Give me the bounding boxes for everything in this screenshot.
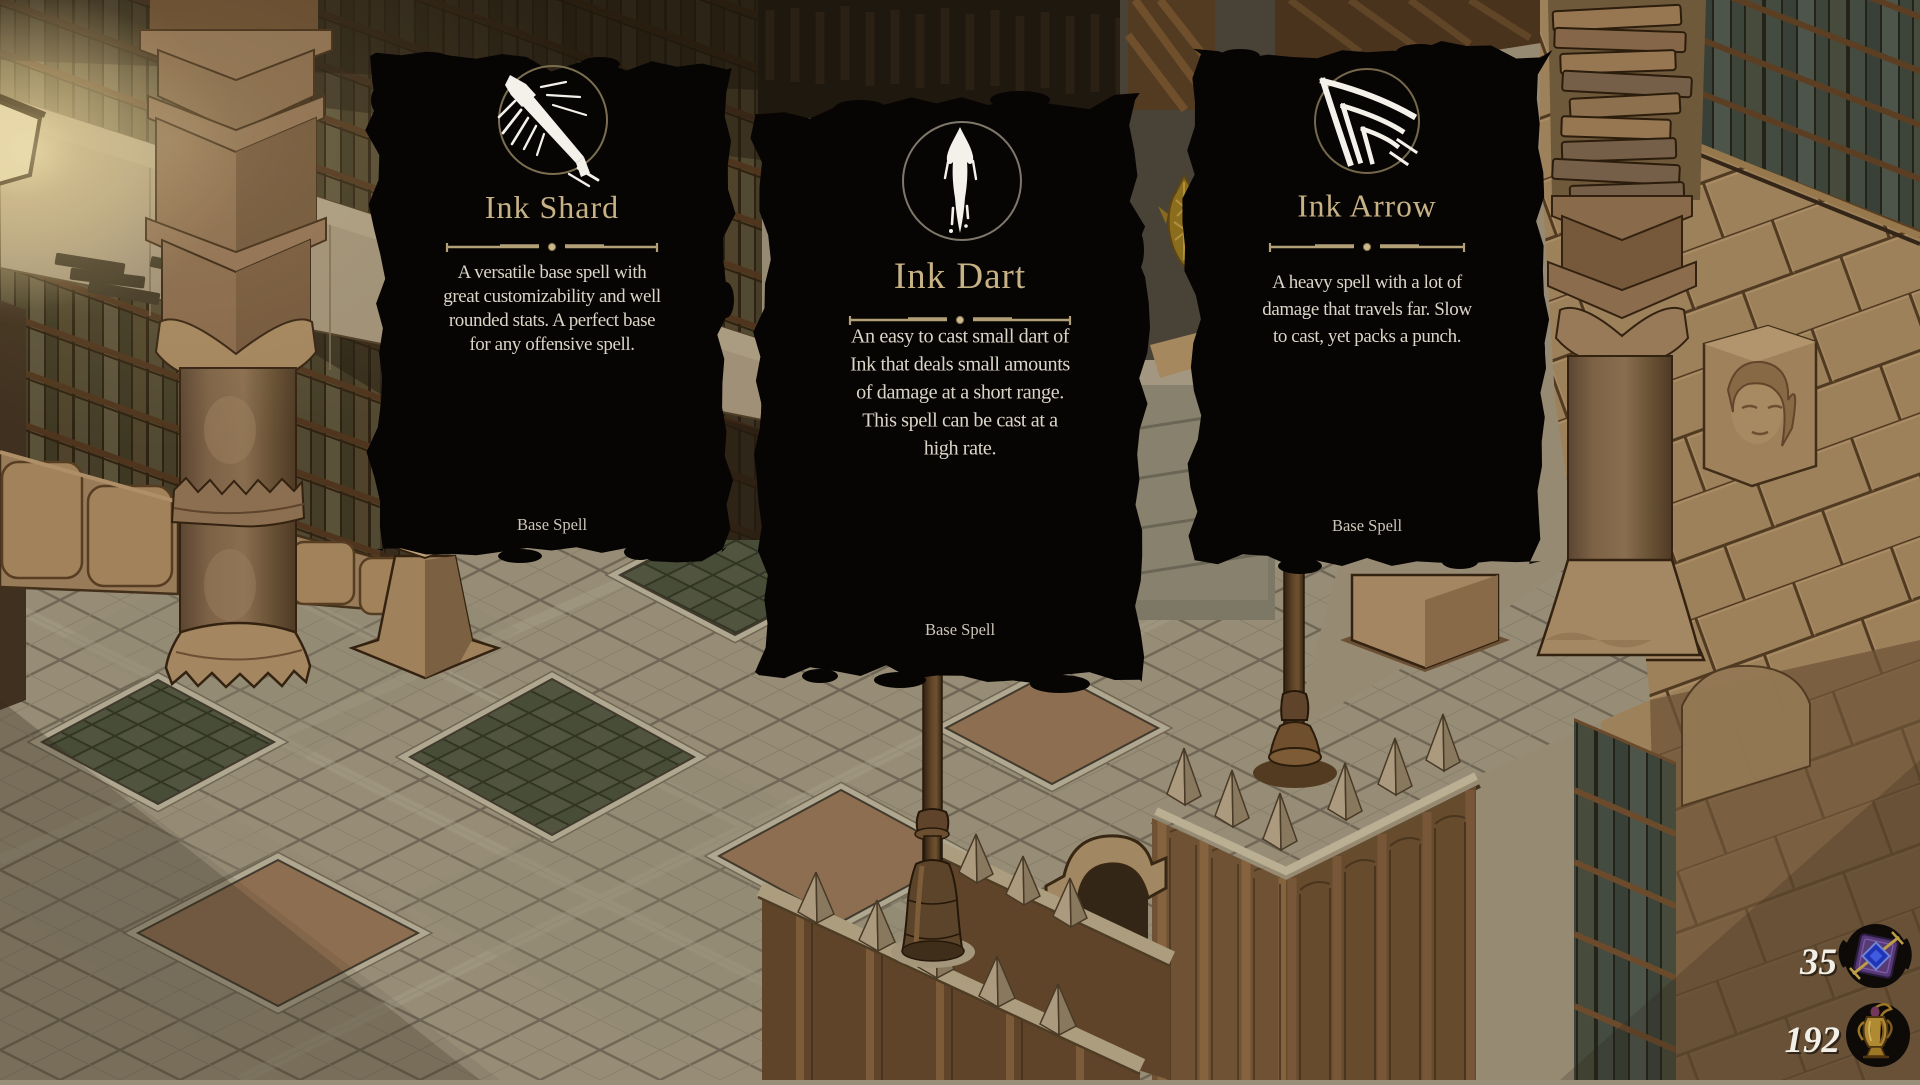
svg-text:Base Spell: Base Spell <box>517 515 588 534</box>
svg-text:rounded stats. A perfect base: rounded stats. A perfect base <box>449 310 655 331</box>
svg-text:damage that travels far. Slow: damage that travels far. Slow <box>1262 299 1472 320</box>
svg-text:192: 192 <box>1785 1020 1841 1061</box>
svg-text:of damage at a short range.: of damage at a short range. <box>856 382 1064 404</box>
svg-text:high rate.: high rate. <box>924 438 996 460</box>
svg-text:Base Spell: Base Spell <box>925 620 996 639</box>
svg-text:great customizability and well: great customizability and well <box>443 286 661 307</box>
svg-text:for any offensive spell.: for any offensive spell. <box>469 334 634 355</box>
svg-text:Base Spell: Base Spell <box>1332 516 1403 535</box>
svg-text:A versatile base spell with: A versatile base spell with <box>458 262 648 283</box>
svg-text:35: 35 <box>1799 942 1837 983</box>
svg-text:Ink Arrow: Ink Arrow <box>1297 189 1436 224</box>
svg-text:Ink Dart: Ink Dart <box>894 256 1026 297</box>
svg-text:Ink Shard: Ink Shard <box>485 189 619 225</box>
svg-text:to cast, yet packs a punch.: to cast, yet packs a punch. <box>1273 326 1461 347</box>
svg-text:Ink that deals small amounts: Ink that deals small amounts <box>850 354 1070 376</box>
svg-text:This spell can be cast at a: This spell can be cast at a <box>862 410 1058 432</box>
svg-text:A heavy spell with a lot of: A heavy spell with a lot of <box>1272 272 1463 293</box>
svg-text:An easy to cast small dart of: An easy to cast small dart of <box>851 326 1070 348</box>
